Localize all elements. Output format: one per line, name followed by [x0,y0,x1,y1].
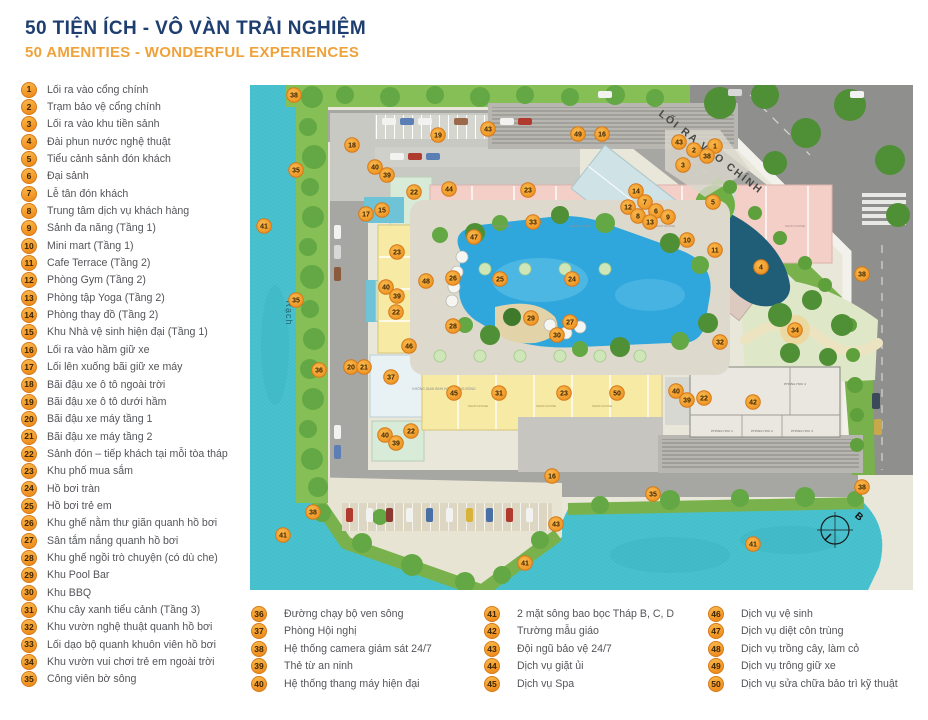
legend-badge: 3 [21,116,37,132]
legend-bottom-column-2: 412 mặt sông bao bọc Tháp B, C, D42Trườn… [484,605,708,693]
legend-label: Khu vườn vui chơi trẻ em ngoài trời [47,656,214,668]
map-marker-35: 35 [646,487,661,502]
map-marker-38: 38 [306,505,321,520]
legend-badge: 20 [21,411,37,427]
map-text-label: SHOP HOUSE [655,224,675,228]
legend-label: Sảnh đón – tiếp khách tại mỗi tòa tháp [47,448,228,460]
legend-badge: 23 [21,463,37,479]
legend-badge: 29 [21,567,37,583]
legend-label: Khu BBQ [47,587,91,599]
legend-item-24: 24Hồ bơi tràn [21,480,249,497]
legend-label: Cafe Terrace (Tầng 2) [47,257,150,269]
svg-text:16: 16 [548,474,556,481]
legend-badge: 31 [21,602,37,618]
legend-item-2: 2Trạm bảo vệ cổng chính [21,98,249,115]
legend-label: Công viên bờ sông [47,673,136,685]
legend-badge: 47 [708,623,724,639]
svg-text:41: 41 [260,224,268,231]
legend-label: Phòng thay đồ (Tầng 2) [47,309,158,321]
legend-label: Lối dạo bộ quanh khuôn viên hồ bơi [47,639,216,651]
map-marker-26: 26 [446,271,461,286]
legend-label: Bãi đậu xe máy tầng 1 [47,413,152,425]
legend-label: Đường chạy bộ ven sông [284,608,403,620]
map-text-label: SHOP HOUSE [536,404,556,408]
page-header: 50 TIỆN ÍCH - VÔ VÀN TRẢI NGHIỆM 50 AMEN… [25,18,366,61]
svg-text:2: 2 [692,148,696,155]
legend-label: Lối ra vào cổng chính [47,84,148,96]
map-text-label: SHOP HOUSE [492,224,512,228]
legend-badge: 41 [484,606,500,622]
svg-text:36: 36 [315,368,323,375]
legend-badge: 48 [708,641,724,657]
page-subtitle: 50 AMENITIES - WONDERFUL EXPERIENCES [25,44,366,61]
legend-label: Thẻ từ an ninh [284,660,353,672]
map-marker-33: 33 [526,215,541,230]
map-marker-19: 19 [431,128,446,143]
svg-text:11: 11 [711,248,719,255]
legend-item-35: 35Công viên bờ sông [21,671,249,688]
legend-item-23: 23Khu phố mua sắm [21,463,249,480]
legend-item-12: 12Phòng Gym (Tầng 2) [21,272,249,289]
svg-text:28: 28 [449,324,457,331]
legend-item-8: 8Trung tâm dịch vụ khách hàng [21,202,249,219]
legend-item-44: 44Dịch vụ giặt ủi [484,658,708,676]
map-marker-22: 22 [697,391,712,406]
map-marker-38: 38 [855,267,870,282]
legend-item-16: 16Lối ra vào hầm giữ xe [21,341,249,358]
legend-item-46: 46Dịch vụ vệ sinh [708,605,928,623]
svg-text:32: 32 [716,340,724,347]
legend-badge: 50 [708,676,724,692]
legend-badge: 46 [708,606,724,622]
map-marker-13: 13 [643,215,658,230]
svg-text:20: 20 [347,365,355,372]
svg-text:37: 37 [387,375,395,382]
legend-badge: 4 [21,134,37,150]
legend-item-36: 36Đường chạy bộ ven sông [251,605,483,623]
map-marker-43: 43 [672,135,687,150]
legend-item-33: 33Lối dạo bộ quanh khuôn viên hồ bơi [21,636,249,653]
legend-badge: 12 [21,272,37,288]
map-marker-34: 34 [788,323,803,338]
svg-text:18: 18 [348,143,356,150]
legend-label: Tiểu cảnh sảnh đón khách [47,153,171,165]
svg-text:33: 33 [529,220,537,227]
legend-item-49: 49Dịch vụ trông giữ xe [708,658,928,676]
legend-label: Dịch vụ vệ sinh [741,608,813,620]
legend-item-21: 21Bãi đậu xe máy tầng 2 [21,428,249,445]
legend-label: Dịch vụ diệt côn trùng [741,625,843,637]
legend-item-14: 14Phòng thay đồ (Tầng 2) [21,306,249,323]
legend-item-50: 50Dịch vụ sửa chữa bảo trì kỹ thuật [708,675,928,693]
legend-label: Khu vườn nghệ thuật quanh hồ bơi [47,621,212,633]
map-marker-11: 11 [708,243,723,258]
map-marker-29: 29 [524,311,539,326]
legend-badge: 30 [21,585,37,601]
map-marker-38: 38 [700,149,715,164]
svg-text:27: 27 [566,320,574,327]
map-text-label: KHÔNG GIAN SINH HOẠT CỘNG ĐỒNG [412,386,476,391]
svg-text:8: 8 [636,214,640,221]
svg-text:38: 38 [703,154,711,161]
map-marker-32: 32 [713,335,728,350]
map-marker-39: 39 [380,168,395,183]
legend-label: Sảnh đa năng (Tầng 1) [47,222,156,234]
map-marker-39: 39 [390,289,405,304]
legend-badge: 6 [21,168,37,184]
legend-item-41: 412 mặt sông bao bọc Tháp B, C, D [484,605,708,623]
map-marker-41: 41 [276,528,291,543]
map-marker-44: 44 [442,182,457,197]
legend-label: Hồ bơi tràn [47,483,100,495]
map-marker-38: 38 [287,88,302,103]
svg-text:29: 29 [527,316,535,323]
legend-item-5: 5Tiểu cảnh sảnh đón khách [21,150,249,167]
legend-badge: 42 [484,623,500,639]
legend-badge: 7 [21,186,37,202]
svg-text:17: 17 [362,212,370,219]
legend-badge: 39 [251,658,267,674]
map-marker-27: 27 [563,315,578,330]
svg-text:26: 26 [449,276,457,283]
legend-badge: 18 [21,377,37,393]
map-text-label: PHÒNG HỌC 2 [751,428,773,433]
legend-badge: 2 [21,99,37,115]
map-marker-16: 16 [545,469,560,484]
legend-label: Sân tắm nắng quanh hồ bơi [47,535,178,547]
svg-text:22: 22 [410,190,418,197]
legend-label: Hệ thống thang máy hiện đại [284,678,419,690]
legend-badge: 49 [708,658,724,674]
svg-text:12: 12 [624,205,632,212]
svg-text:21: 21 [360,365,368,372]
legend-badge: 44 [484,658,500,674]
map-marker-9: 9 [661,210,676,225]
map-marker-45: 45 [447,386,462,401]
svg-text:43: 43 [552,522,560,529]
legend-badge: 36 [251,606,267,622]
legend-label: Khu ghế nằm thư giãn quanh hồ bơi [47,517,217,529]
svg-text:35: 35 [292,168,300,175]
map-text-label: SHOP HOUSE [570,224,590,228]
legend-badge: 15 [21,324,37,340]
legend-item-31: 31Khu cây xanh tiểu cảnh (Tầng 3) [21,601,249,618]
map-marker-37: 37 [384,370,399,385]
legend-label: Dịch vụ sửa chữa bảo trì kỹ thuật [741,678,898,690]
legend-badge: 10 [21,238,37,254]
svg-text:41: 41 [521,561,529,568]
legend-label: Khu ghế ngồi trò chuyện (có dù che) [47,552,218,564]
svg-text:16: 16 [598,132,606,139]
legend-badge: 5 [21,151,37,167]
legend-badge: 25 [21,498,37,514]
svg-text:41: 41 [279,533,287,540]
svg-text:14: 14 [632,189,640,196]
map-text-label: PHÒNG HỌC 1 [711,428,733,433]
legend-item-40: 40Hệ thống thang máy hiện đại [251,675,483,693]
legend-item-48: 48Dịch vụ trồng cây, làm cỏ [708,640,928,658]
legend-bottom-column-3: 46Dịch vụ vệ sinh47Dịch vụ diệt côn trùn… [708,605,928,693]
legend-item-30: 30Khu BBQ [21,584,249,601]
map-marker-41: 41 [518,556,533,571]
legend-label: Khu cây xanh tiểu cảnh (Tầng 3) [47,604,200,616]
legend-label: Trạm bảo vệ cổng chính [47,101,161,113]
legend-item-15: 15Khu Nhà vệ sinh hiện đại (Tầng 1) [21,324,249,341]
svg-text:38: 38 [309,510,317,517]
legend-label: Dịch vụ Spa [517,678,574,690]
svg-text:45: 45 [450,391,458,398]
svg-text:43: 43 [484,127,492,134]
legend-label: Bãi đậu xe ô tô dưới hầm [47,396,166,408]
site-plan-map: LỐI RA VÀO CHÍNHRạchBKHÔNG GIAN SINH HOẠ… [250,85,928,600]
svg-text:22: 22 [700,396,708,403]
legend-item-19: 19Bãi đậu xe ô tô dưới hầm [21,393,249,410]
legend-item-26: 26Khu ghế nằm thư giãn quanh hồ bơi [21,515,249,532]
legend-badge: 17 [21,359,37,375]
legend-item-42: 42Trường mẫu giáo [484,623,708,641]
map-marker-5: 5 [706,195,721,210]
map-marker-22: 22 [407,185,422,200]
svg-text:40: 40 [672,389,680,396]
legend-badge: 38 [251,641,267,657]
map-marker-35: 35 [289,293,304,308]
legend-label: Phòng Gym (Tầng 2) [47,274,146,286]
svg-text:39: 39 [392,441,400,448]
legend-item-13: 13Phòng tập Yoga (Tầng 2) [21,289,249,306]
legend-item-32: 32Khu vườn nghệ thuật quanh hồ bơi [21,619,249,636]
map-marker-24: 24 [565,272,580,287]
map-marker-4: 4 [754,260,769,275]
legend-badge: 9 [21,220,37,236]
legend-badge: 35 [21,671,37,687]
legend-item-34: 34Khu vườn vui chơi trẻ em ngoài trời [21,653,249,670]
map-marker-3: 3 [676,158,691,173]
map-marker-35: 35 [289,163,304,178]
svg-text:22: 22 [407,429,415,436]
svg-text:38: 38 [858,485,866,492]
legend-badge: 24 [21,481,37,497]
svg-text:38: 38 [290,93,298,100]
legend-label: Trường mẫu giáo [517,625,599,637]
svg-text:22: 22 [392,310,400,317]
map-marker-15: 15 [375,203,390,218]
map-marker-38: 38 [855,480,870,495]
svg-text:38: 38 [858,272,866,279]
legend-label: Hệ thống camera giám sát 24/7 [284,643,432,655]
legend-badge: 14 [21,307,37,323]
svg-text:15: 15 [378,208,386,215]
svg-text:23: 23 [393,250,401,257]
svg-text:13: 13 [646,220,654,227]
svg-text:41: 41 [749,542,757,549]
map-marker-36: 36 [312,363,327,378]
legend-label: Lối ra vào hầm giữ xe [47,344,150,356]
svg-text:47: 47 [470,235,478,242]
map-text-label: SHOP HOUSE [468,404,488,408]
page-title: 50 TIỆN ÍCH - VÔ VÀN TRẢI NGHIỆM [25,18,366,40]
legend-badge: 32 [21,619,37,635]
legend-label: Phòng Hội nghị [284,625,356,637]
svg-text:10: 10 [683,238,691,245]
map-marker-21: 21 [357,360,372,375]
legend-item-1: 1Lối ra vào cổng chính [21,81,249,98]
svg-text:49: 49 [574,132,582,139]
svg-text:40: 40 [382,285,390,292]
legend-label: Lối lên xuống bãi giữ xe máy [47,361,182,373]
legend-item-25: 25Hồ bơi trẻ em [21,497,249,514]
svg-text:4: 4 [759,265,763,272]
svg-text:9: 9 [666,215,670,222]
map-marker-25: 25 [493,272,508,287]
legend-label: Lễ tân đón khách [47,188,128,200]
map-marker-41: 41 [746,537,761,552]
map-marker-16: 16 [595,127,610,142]
map-marker-22: 22 [404,424,419,439]
svg-text:42: 42 [749,400,757,407]
legend-label: Khu Nhà vệ sinh hiện đại (Tầng 1) [47,326,208,338]
legend-label: Đài phun nước nghệ thuật [47,136,171,148]
svg-text:44: 44 [445,187,453,194]
legend-label: Dịch vụ giặt ủi [517,660,584,672]
legend-item-6: 6Đại sảnh [21,168,249,185]
map-marker-41: 41 [257,219,272,234]
map-text-label: SHOP HOUSE [592,404,612,408]
map-marker-49: 49 [571,127,586,142]
legend-label: Đội ngũ bảo vệ 24/7 [517,643,612,655]
map-marker-42: 42 [746,395,761,410]
svg-text:6: 6 [654,209,658,216]
legend-item-11: 11Cafe Terrace (Tầng 2) [21,254,249,271]
legend-label: Lối ra vào khu tiền sảnh [47,118,160,130]
map-text-label: PHÒNG HỌC 3 [791,428,813,433]
legend-label: Khu phố mua sắm [47,465,133,477]
svg-text:39: 39 [383,173,391,180]
legend-badge: 8 [21,203,37,219]
map-marker-20: 20 [344,360,359,375]
svg-text:48: 48 [422,279,430,286]
legend-badge: 33 [21,637,37,653]
legend-badge: 1 [21,82,37,98]
legend-badge: 11 [21,255,37,271]
map-marker-23: 23 [521,183,536,198]
legend-item-20: 20Bãi đậu xe máy tầng 1 [21,411,249,428]
legend-item-27: 27Sân tắm nắng quanh hồ bơi [21,532,249,549]
legend-badge: 21 [21,429,37,445]
legend-item-43: 43Đội ngũ bảo vệ 24/7 [484,640,708,658]
map-marker-10: 10 [680,233,695,248]
svg-text:24: 24 [568,277,576,284]
legend-item-47: 47Dịch vụ diệt côn trùng [708,623,928,641]
map-marker-28: 28 [446,319,461,334]
legend-label: Phòng tập Yoga (Tầng 2) [47,292,165,304]
svg-text:31: 31 [495,391,503,398]
legend-item-38: 38Hệ thống camera giám sát 24/7 [251,640,483,658]
svg-text:39: 39 [393,294,401,301]
svg-text:1: 1 [713,144,717,151]
legend-left-column: 1Lối ra vào cổng chính2Trạm bảo vệ cổng … [21,81,249,688]
svg-text:34: 34 [791,328,799,335]
map-marker-43: 43 [549,517,564,532]
legend-item-9: 9Sảnh đa năng (Tầng 1) [21,220,249,237]
legend-item-3: 3Lối ra vào khu tiền sảnh [21,116,249,133]
legend-label: Trung tâm dịch vụ khách hàng [47,205,189,217]
map-marker-23: 23 [557,386,572,401]
legend-item-37: 37Phòng Hội nghị [251,623,483,641]
legend-item-7: 7Lễ tân đón khách [21,185,249,202]
legend-item-4: 4Đài phun nước nghệ thuật [21,133,249,150]
legend-item-29: 29Khu Pool Bar [21,567,249,584]
svg-text:35: 35 [649,492,657,499]
svg-text:46: 46 [405,344,413,351]
map-marker-31: 31 [492,386,507,401]
svg-text:40: 40 [371,165,379,172]
map-text-label: SHOP HOUSE [785,224,805,228]
map-marker-50: 50 [610,386,625,401]
map-marker-43: 43 [481,122,496,137]
legend-badge: 43 [484,641,500,657]
legend-badge: 19 [21,394,37,410]
legend-label: 2 mặt sông bao bọc Tháp B, C, D [517,608,674,620]
legend-item-39: 39Thẻ từ an ninh [251,658,483,676]
map-marker-39: 39 [389,436,404,451]
legend-item-10: 10Mini mart (Tầng 1) [21,237,249,254]
legend-label: Hồ bơi trẻ em [47,500,112,512]
legend-badge: 26 [21,515,37,531]
svg-text:23: 23 [524,188,532,195]
legend-badge: 37 [251,623,267,639]
map-marker-46: 46 [402,339,417,354]
svg-text:23: 23 [560,391,568,398]
legend-label: Mini mart (Tầng 1) [47,240,134,252]
legend-item-17: 17Lối lên xuống bãi giữ xe máy [21,359,249,376]
svg-text:39: 39 [683,398,691,405]
legend-badge: 13 [21,290,37,306]
svg-text:5: 5 [711,200,715,207]
map-marker-39: 39 [680,393,695,408]
map-marker-30: 30 [550,328,565,343]
legend-label: Khu Pool Bar [47,569,109,581]
svg-text:25: 25 [496,277,504,284]
map-marker-18: 18 [345,138,360,153]
svg-text:43: 43 [675,140,683,147]
legend-badge: 27 [21,533,37,549]
svg-text:3: 3 [681,163,685,170]
svg-text:30: 30 [553,333,561,340]
legend-item-22: 22Sảnh đón – tiếp khách tại mỗi tòa tháp [21,445,249,462]
legend-label: Dịch vụ trông giữ xe [741,660,836,672]
legend-badge: 34 [21,654,37,670]
legend-label: Đại sảnh [47,170,89,182]
map-marker-17: 17 [359,207,374,222]
legend-label: Bãi đậu xe ô tô ngoài trời [47,379,165,391]
svg-text:19: 19 [434,133,442,140]
legend-label: Bãi đậu xe máy tầng 2 [47,431,152,443]
svg-text:50: 50 [613,391,621,398]
legend-item-28: 28Khu ghế ngồi trò chuyện (có dù che) [21,549,249,566]
map-marker-47: 47 [467,230,482,245]
legend-badge: 16 [21,342,37,358]
legend-badge: 28 [21,550,37,566]
legend-badge: 45 [484,676,500,692]
legend-item-45: 45Dịch vụ Spa [484,675,708,693]
map-text-label: PHÒNG HỌC 4 [784,381,806,386]
map-marker-48: 48 [419,274,434,289]
legend-badge: 40 [251,676,267,692]
svg-text:40: 40 [381,433,389,440]
legend-bottom-column-1: 36Đường chạy bộ ven sông37Phòng Hội nghị… [251,605,483,693]
map-marker-2: 2 [687,143,702,158]
svg-text:7: 7 [643,200,647,207]
